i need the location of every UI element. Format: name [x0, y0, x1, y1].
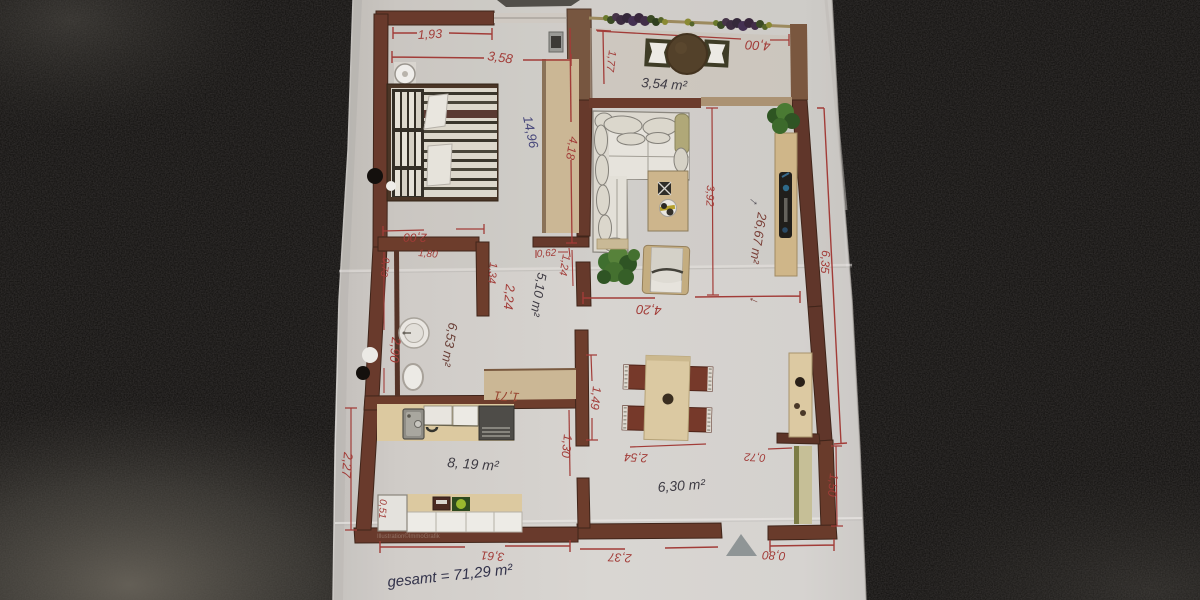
svg-text:1,50: 1,50 [825, 473, 841, 498]
svg-text:2,37: 2,37 [607, 550, 633, 565]
svg-text:1,34: 1,34 [485, 262, 499, 284]
svg-text:0,62: 0,62 [536, 248, 557, 260]
svg-text:2,90: 2,90 [387, 336, 404, 364]
svg-text:1,80: 1,80 [418, 248, 439, 261]
svg-text:4,20: 4,20 [635, 302, 662, 318]
svg-text:2,54: 2,54 [624, 450, 649, 465]
svg-text:6,30 m²: 6,30 m² [657, 476, 707, 495]
svg-text:6,35: 6,35 [818, 250, 833, 274]
svg-text:1,30: 1,30 [559, 434, 575, 459]
svg-text:2,27: 2,27 [339, 451, 356, 479]
svg-text:1,71: 1,71 [494, 388, 520, 405]
svg-text:0,80: 0,80 [762, 548, 786, 563]
svg-text:1,93: 1,93 [417, 27, 442, 42]
svg-text:0,72: 0,72 [744, 450, 766, 463]
svg-text:0,51: 0,51 [376, 499, 388, 519]
svg-text:Illustration©ImmoGrafik: Illustration©ImmoGrafik [377, 533, 441, 540]
svg-text:2,24: 2,24 [501, 283, 518, 311]
svg-text:1,49: 1,49 [588, 386, 604, 411]
svg-text:4,00: 4,00 [744, 37, 771, 53]
svg-text:2,00: 2,00 [403, 230, 428, 244]
svg-text:3,92: 3,92 [703, 185, 716, 207]
